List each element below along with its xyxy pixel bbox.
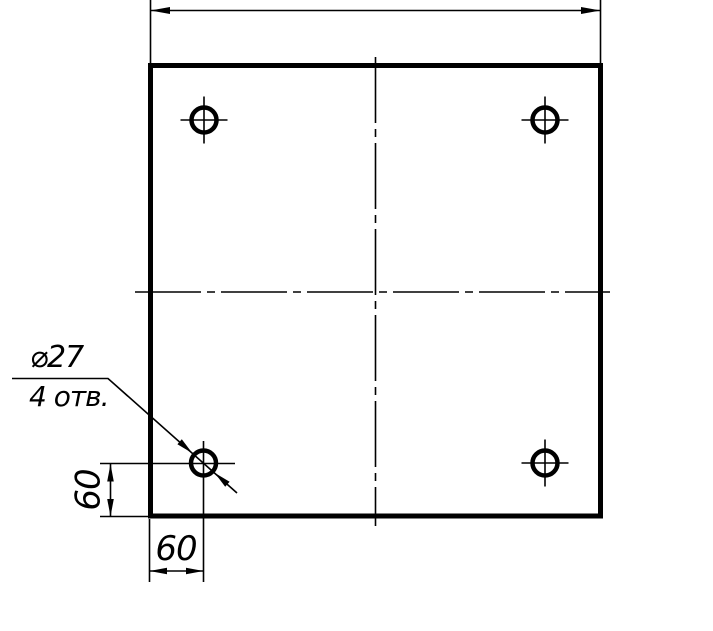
hole-top-right [522,97,569,144]
dimension-arrow-left [151,7,171,14]
dimension-arrow-right [581,7,601,14]
drawing-canvas: 60 60 ⌀27 4 отв. [0,0,713,631]
callout-hole-count-text: 4 отв. [29,380,109,413]
dimension-vertical-60: 60 [69,464,149,517]
dimension-overall-width [151,0,601,64]
dimension-value-horizontal: 60 [155,529,196,569]
dimension-horizontal-60: 60 [150,519,204,582]
hole-top-left [181,97,228,144]
technical-drawing: 60 60 ⌀27 4 отв. [0,0,713,631]
hole-bottom-right [522,440,569,487]
callout-diameter-text: ⌀27 [30,340,84,375]
dimension-value-vertical: 60 [69,469,109,510]
